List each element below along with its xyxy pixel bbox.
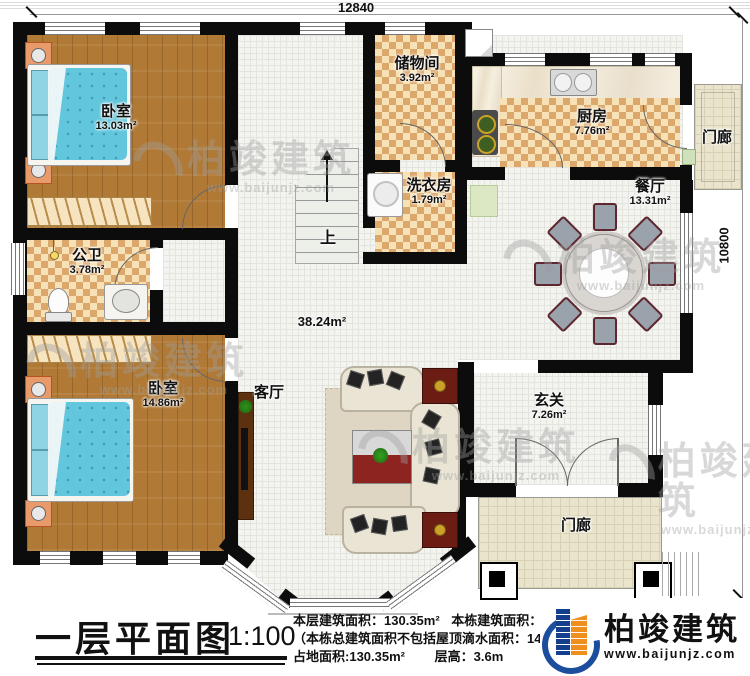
floor-area-value: 130.35m² xyxy=(384,613,440,628)
drawing-scale: 1:100 xyxy=(228,621,296,652)
wall-segment xyxy=(458,362,474,497)
brand-url: www.baijunjz.com xyxy=(604,647,740,661)
column-core xyxy=(643,571,659,587)
room-label-porch-right: 门廊 xyxy=(702,130,732,146)
window xyxy=(680,213,693,313)
frame-line xyxy=(0,5,750,6)
room-name: 玄关 xyxy=(532,393,567,409)
window xyxy=(300,22,345,35)
shaft-box xyxy=(465,29,493,57)
dining-chair xyxy=(593,203,617,231)
wall-segment xyxy=(458,483,516,497)
room-name: 门廊 xyxy=(561,518,591,534)
dining-chair xyxy=(648,262,676,286)
side-table-knob xyxy=(434,524,446,536)
room-name: 储物间 xyxy=(394,56,439,72)
wall-segment xyxy=(225,381,238,551)
window xyxy=(385,22,425,35)
total-area-label: 本栋建筑面积： xyxy=(451,613,542,628)
room-name: 客厅 xyxy=(254,385,284,401)
frame-line xyxy=(0,8,750,9)
hall-nook-floor xyxy=(163,240,225,322)
wall-segment xyxy=(225,22,238,185)
nightstand-knob xyxy=(31,382,46,397)
column-core xyxy=(489,571,505,587)
window xyxy=(645,53,675,66)
room-label-foyer: 玄关 7.26m² xyxy=(532,393,567,421)
room-label-dining: 餐厅 13.31m² xyxy=(630,179,671,207)
room-label-laundry: 洗衣房 1.79m² xyxy=(406,178,451,206)
dimension-top-label: 12840 xyxy=(338,0,374,15)
dimension-line-top xyxy=(30,14,737,15)
sink-bowl xyxy=(554,73,572,92)
window xyxy=(11,243,25,295)
room-name: 门廊 xyxy=(702,130,732,146)
room-area: 13.03m² xyxy=(96,120,137,132)
title-underline xyxy=(35,656,287,660)
light-cord xyxy=(53,240,54,251)
wardrobe xyxy=(27,335,152,363)
title-underline xyxy=(37,663,285,665)
porch-steps xyxy=(662,552,700,596)
floor-plan-canvas: 上 xyxy=(0,0,750,676)
height-label: 层高： xyxy=(435,649,474,664)
stairs-up-label: 上 xyxy=(320,224,336,248)
wall-segment xyxy=(648,373,663,405)
room-area: 7.76m² xyxy=(575,125,610,137)
room-label-bedroom1: 卧室 13.03m² xyxy=(96,104,137,132)
pillow xyxy=(31,404,50,450)
logo-building-blue xyxy=(556,609,570,655)
room-name: 餐厅 xyxy=(630,179,671,195)
sofa-pillow xyxy=(371,518,388,535)
room-area: 14.86m² xyxy=(143,397,184,409)
land-area-value: 130.35m² xyxy=(349,649,405,664)
wall-segment xyxy=(225,228,238,338)
room-label-bathroom: 公卫 3.78m² xyxy=(70,248,105,276)
watermark-url: www.baijunjz.com xyxy=(658,522,750,537)
wall-segment xyxy=(680,66,692,105)
pillow xyxy=(31,70,50,115)
room-area: 1.79m² xyxy=(406,194,451,206)
logo-building-orange xyxy=(571,615,587,655)
note-label: （本栋总建筑面积不包括屋顶滴水面积： xyxy=(293,631,527,646)
room-name: 公卫 xyxy=(70,248,105,264)
room-area: 13.31m² xyxy=(630,195,671,207)
wall-segment xyxy=(363,160,400,172)
porch-column xyxy=(480,562,518,600)
dimension-right-label: 10800 xyxy=(717,227,732,263)
pillow xyxy=(31,450,50,496)
window xyxy=(40,551,70,565)
window xyxy=(505,53,545,66)
floor-mat xyxy=(470,185,498,217)
dining-table-top xyxy=(579,248,629,298)
sink-bowl xyxy=(574,73,592,92)
entry-door-leaf xyxy=(617,438,619,486)
floor-area-label: 本层建筑面积： xyxy=(293,613,384,628)
stairs-up-text: 上 xyxy=(320,230,336,247)
window xyxy=(590,53,632,66)
wall-segment xyxy=(13,322,238,335)
wall-segment xyxy=(363,22,375,172)
sofa-pillow xyxy=(367,369,384,386)
plant-icon xyxy=(373,448,388,463)
window xyxy=(648,405,663,455)
room-name: 厨房 xyxy=(575,109,610,125)
wall-segment xyxy=(680,180,693,213)
dining-chair xyxy=(534,262,562,286)
room-area: 7.26m² xyxy=(532,409,567,421)
brand-name: 柏竣建筑 xyxy=(604,613,740,647)
dining-chair xyxy=(593,317,617,345)
room-name: 卧室 xyxy=(96,104,137,120)
sofa-pillow xyxy=(391,515,408,532)
window xyxy=(168,551,200,565)
room-label-bedroom2: 卧室 14.86m² xyxy=(143,381,184,409)
sofa-pillow xyxy=(423,467,441,485)
washer-drum xyxy=(373,181,399,207)
window xyxy=(45,22,105,35)
window xyxy=(103,551,136,565)
dimension-line-right xyxy=(742,20,743,598)
up-arrow-icon xyxy=(321,150,333,160)
room-name: 卧室 xyxy=(143,381,184,397)
pillow xyxy=(31,115,50,160)
brand-block: 柏竣建筑 www.baijunjz.com xyxy=(540,598,750,676)
room-name: 洗衣房 xyxy=(406,178,451,194)
tv-icon xyxy=(241,428,248,490)
wall-segment xyxy=(460,167,505,180)
hall-area-label: 38.24m² xyxy=(298,314,346,329)
stairs-direction-line xyxy=(326,158,328,202)
room-label-kitchen: 厨房 7.76m² xyxy=(575,109,610,137)
room-area: 3.78m² xyxy=(70,264,105,276)
wall-segment xyxy=(150,290,163,322)
nightstand-knob xyxy=(31,506,46,521)
room-label-storage: 储物间 3.92m² xyxy=(394,56,439,84)
ceiling-light-icon xyxy=(50,251,59,260)
toilet-tank xyxy=(45,312,72,322)
entry-door-leaf xyxy=(515,438,517,486)
bay-window xyxy=(290,598,390,610)
window xyxy=(140,22,200,35)
nightstand xyxy=(25,500,52,527)
nightstand-knob xyxy=(31,48,46,63)
frame-line xyxy=(0,2,750,3)
wall-segment xyxy=(460,66,472,167)
drawing-title: 一层平面图 xyxy=(35,610,235,662)
land-area-label: 占地面积: xyxy=(293,649,349,664)
plant-icon xyxy=(239,400,252,413)
brand-logo-icon xyxy=(540,604,598,670)
wall-segment xyxy=(680,165,692,180)
watermark-text: 柏竣建筑 xyxy=(658,442,750,522)
sink-basin xyxy=(112,289,140,313)
room-label-porch-bottom: 门廊 xyxy=(561,518,591,534)
burner xyxy=(477,115,496,134)
height-value: 3.6m xyxy=(474,649,504,664)
wardrobe xyxy=(27,197,152,226)
wall-segment xyxy=(538,360,693,373)
wall-segment xyxy=(455,172,467,264)
room-area: 3.92m² xyxy=(394,72,439,84)
wall-segment xyxy=(618,483,663,497)
ac-unit-icon xyxy=(682,149,696,165)
wall-segment xyxy=(363,252,467,264)
burner xyxy=(477,135,496,154)
wall-segment xyxy=(13,228,238,240)
room-label-living: 客厅 xyxy=(254,385,284,401)
side-table-knob xyxy=(434,380,446,392)
area-text: 38.24m² xyxy=(298,314,346,329)
